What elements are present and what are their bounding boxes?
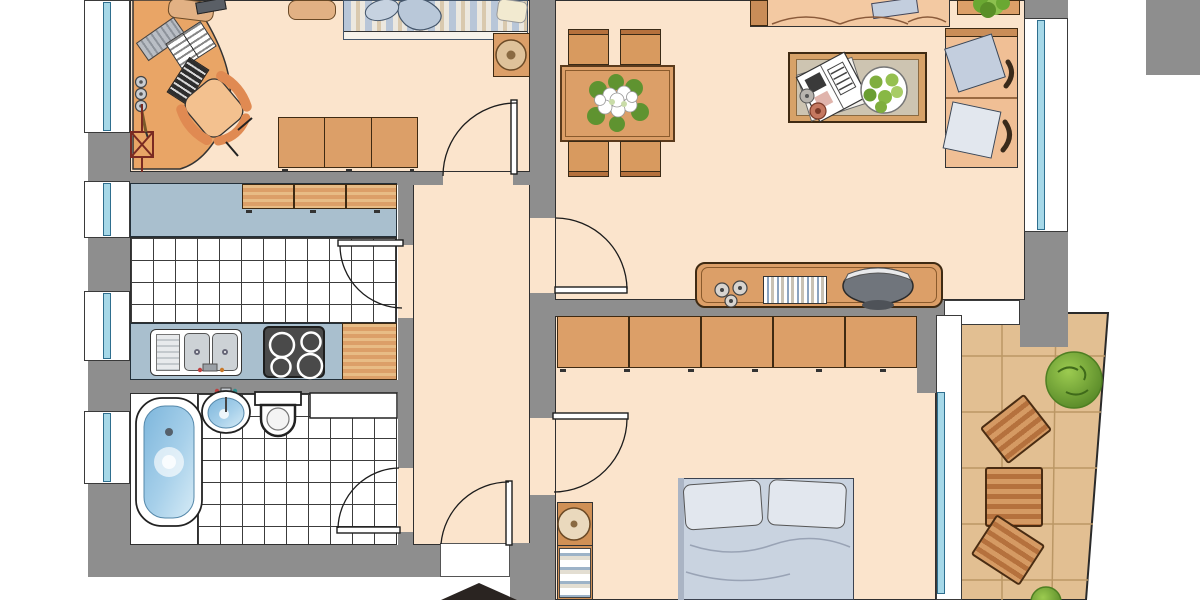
wardrobe-door-2	[629, 316, 701, 368]
bathroom-tiles	[197, 393, 397, 545]
coffee-table-top	[796, 59, 919, 116]
kitchen-cabinet-3	[346, 184, 397, 209]
shelf-books	[559, 548, 591, 598]
dining-chair-bottom-right	[620, 141, 661, 177]
office-sideboard-divider	[324, 118, 325, 167]
office-sideboard-divider2	[371, 118, 372, 167]
office-bed-pillow	[496, 0, 529, 24]
balcony-shrub	[1046, 352, 1102, 408]
dining-chair-bottom-left	[568, 141, 609, 177]
corner-sofa-pillow-2	[943, 101, 1002, 158]
kitchen-cabinet-1	[242, 184, 294, 209]
kitchen-window-upper-glass	[103, 183, 111, 236]
wall-bottom-left	[88, 545, 440, 577]
wardrobe-door-1	[557, 316, 629, 368]
garden-chair-upper	[980, 394, 1052, 465]
kitchen-window-lower-glass	[103, 293, 111, 359]
wall-hall-right-mid	[530, 293, 555, 418]
dining-chair-top-left	[568, 29, 609, 65]
chair-backrest	[568, 171, 609, 177]
dining-table-inner-line	[565, 70, 670, 137]
wall-kitchen-right-upper	[398, 183, 413, 245]
sink-basin-right	[212, 333, 238, 371]
coffee-table	[788, 52, 927, 123]
wardrobe-door-4	[773, 316, 845, 368]
balcony-door-glass	[937, 392, 945, 594]
wall-neighbor-top-right	[1146, 0, 1200, 75]
kitchen-cabinet-2	[294, 184, 346, 209]
balcony-shrub-bottom	[1031, 587, 1061, 600]
cutoff-chair-top2	[288, 0, 336, 20]
wardrobe-door-5	[845, 316, 917, 368]
bathroom-door-opening	[398, 468, 413, 532]
living-door-opening	[530, 218, 555, 293]
nightstand	[493, 33, 530, 77]
wall-bathroom-top	[88, 380, 413, 393]
wardrobe-door-3	[701, 316, 773, 368]
chair-backrest	[620, 29, 661, 35]
sink-basin-left	[184, 333, 210, 371]
sofa	[750, 0, 950, 27]
office-window-glass	[103, 2, 111, 131]
entrance-arrow	[441, 583, 517, 600]
wall-hall-right-top	[530, 0, 555, 218]
office-sideboard	[278, 117, 418, 168]
entry-threshold	[440, 543, 510, 577]
stove	[263, 326, 325, 378]
sink-drainboard	[156, 334, 180, 371]
dining-chair-top-right	[620, 29, 661, 65]
bedroom-door-opening	[530, 418, 555, 495]
corner-sofa-divider	[946, 97, 1017, 99]
wardrobe-feet	[560, 369, 914, 372]
wall-kitchen-right-lower	[398, 318, 413, 380]
wall-hall-right-low	[530, 495, 555, 543]
plant-side-table	[957, 0, 1020, 15]
bathroom-window-glass	[103, 413, 111, 482]
living-window	[1024, 18, 1068, 232]
hallway-floor	[413, 183, 530, 545]
cutting-board	[342, 323, 397, 380]
floor-plan	[0, 0, 1200, 600]
cd-rack	[763, 276, 827, 304]
bed-pillow-left	[682, 479, 763, 530]
sofa-armrest	[750, 0, 768, 26]
kitchen-cabinet-feet	[246, 210, 394, 213]
office-sideboard-feet	[282, 169, 414, 172]
wall-bathroom-right-upper	[398, 393, 413, 468]
bed-pillow-right	[767, 479, 847, 529]
kitchen-door-opening	[398, 245, 413, 318]
kitchen-tiles	[130, 237, 397, 323]
office-door-opening	[443, 172, 513, 185]
bedroom-shelf-divider	[558, 545, 592, 546]
wall-bedroom-right	[917, 315, 937, 393]
chair-backrest	[620, 171, 661, 177]
living-window-glass	[1037, 20, 1045, 230]
chair-backrest	[568, 29, 609, 35]
coat-stand	[130, 131, 154, 158]
wall-entry-stub	[510, 543, 555, 600]
dining-table	[560, 65, 675, 142]
